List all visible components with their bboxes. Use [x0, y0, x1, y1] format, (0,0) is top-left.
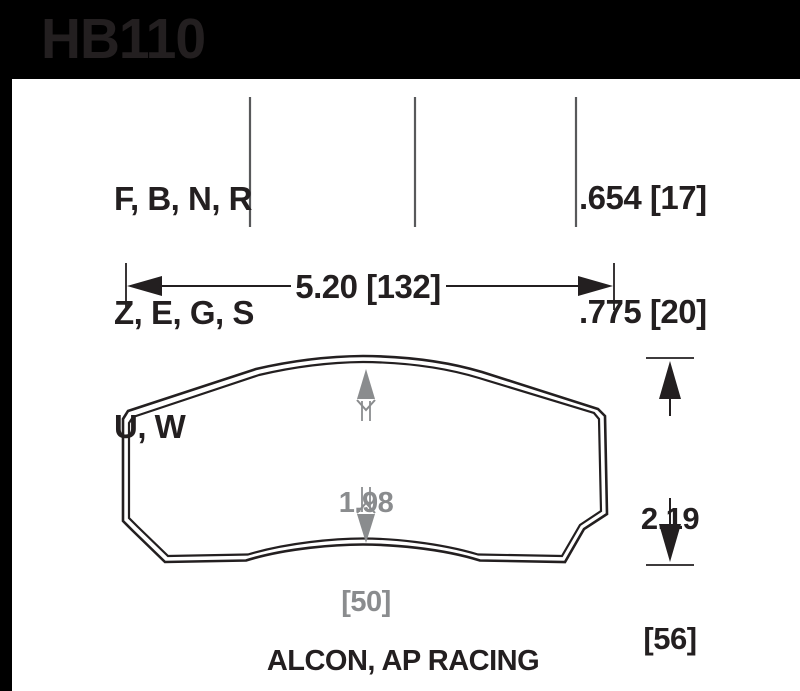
compound-line: Z, E, G, S [114, 294, 254, 332]
diagram-canvas: HB110 [0, 0, 800, 691]
overall-height-inches: 2.19 [620, 499, 720, 539]
thickness-line: .775 [20] [579, 293, 707, 331]
up-chevron-icon [357, 400, 375, 410]
compound-line: F, B, N, R [114, 180, 254, 218]
pad-thickness-label: .654 [17] .775 [20] [579, 103, 707, 407]
up-arrowhead-icon [357, 369, 375, 399]
center-height-mm: [50] [316, 586, 416, 619]
width-dimension-label: 5.20 [132] [268, 268, 468, 306]
spec-table-separators [250, 97, 576, 227]
thickness-line: .654 [17] [579, 179, 707, 217]
compound-codes-label: F, B, N, R Z, E, G, S U, W [114, 104, 254, 522]
center-height-inches: 1.98 [316, 487, 416, 520]
applications-label: ALCON, AP RACING [100, 645, 706, 678]
compound-line: U, W [114, 408, 254, 446]
